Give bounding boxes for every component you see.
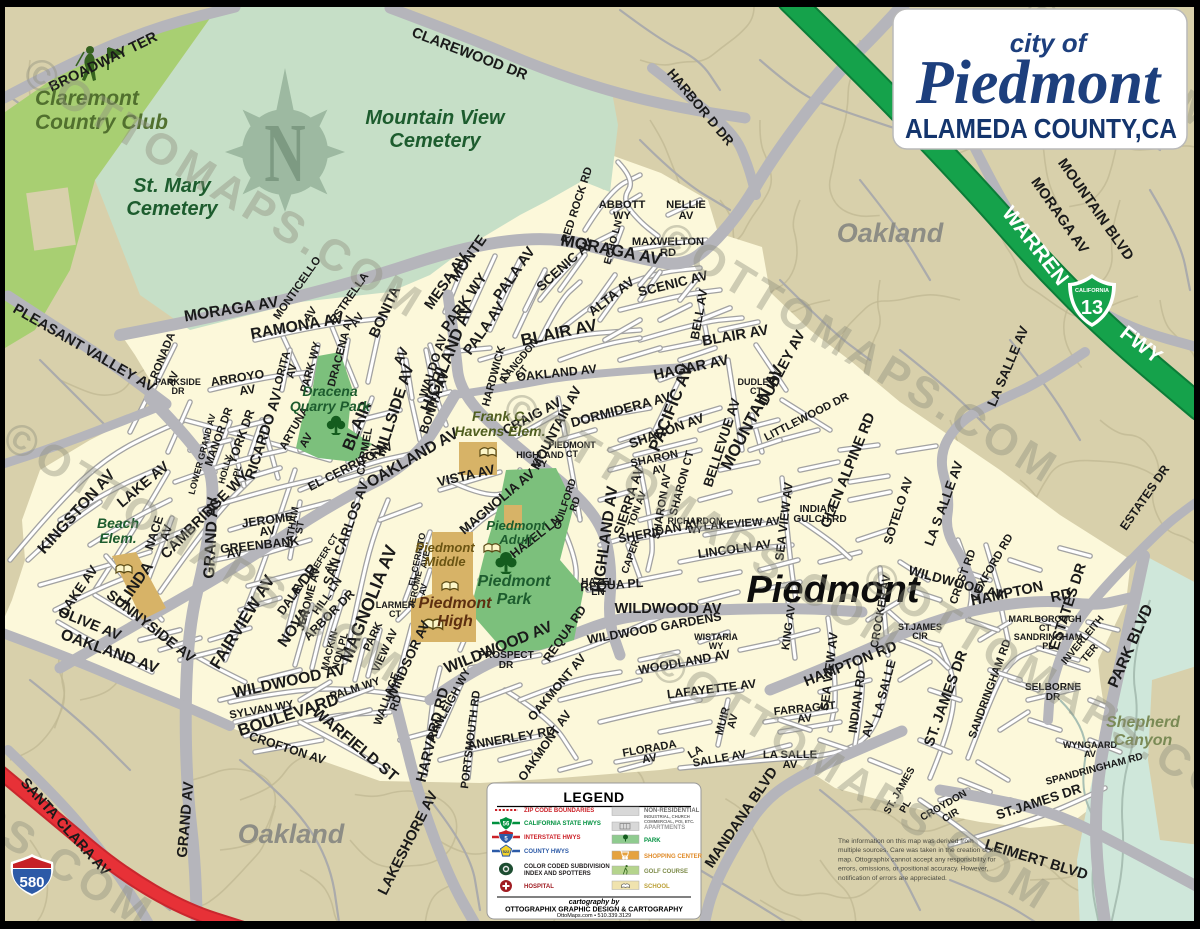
- svg-text:COLOR CODED SUBDIVISION: COLOR CODED SUBDIVISION: [524, 864, 610, 870]
- svg-text:Quarry Park: Quarry Park: [290, 398, 371, 414]
- svg-text:CT: CT: [389, 609, 401, 619]
- svg-text:multiple sources. Care was tak: multiple sources. Care was taken in the …: [838, 847, 1001, 854]
- svg-text:Piedmont: Piedmont: [486, 518, 546, 533]
- svg-text:INTERSTATE HWYS: INTERSTATE HWYS: [524, 835, 580, 841]
- svg-text:N: N: [264, 106, 305, 200]
- svg-text:DR: DR: [172, 386, 185, 396]
- svg-text:Piedmont: Piedmont: [478, 573, 552, 590]
- svg-text:ALAMEDA COUNTY,CA: ALAMEDA COUNTY,CA: [905, 113, 1177, 144]
- svg-text:The information on this map wa: The information on this map was derived …: [838, 838, 974, 845]
- svg-text:56: 56: [503, 822, 510, 828]
- svg-text:AV: AV: [1084, 749, 1096, 759]
- svg-text:errors, omissions, or position: errors, omissions, or positional accurac…: [838, 866, 989, 873]
- svg-text:SHOPPING CENTER: SHOPPING CENTER: [644, 854, 703, 860]
- svg-text:cartography by: cartography by: [569, 899, 621, 906]
- svg-text:High: High: [437, 613, 473, 630]
- svg-text:map. Ottographix cannot accept: map. Ottographix cannot accept any respo…: [838, 856, 996, 863]
- svg-text:13: 13: [1081, 297, 1103, 319]
- svg-text:Oakland: Oakland: [837, 218, 944, 248]
- svg-text:COMMERCIAL, POI, ETC.: COMMERCIAL, POI, ETC.: [644, 819, 694, 824]
- svg-text:Adult: Adult: [498, 532, 533, 547]
- svg-text:Dracena: Dracena: [302, 383, 357, 399]
- svg-text:Cemetery: Cemetery: [389, 130, 481, 152]
- svg-text:CALIFORNIA STATE HWYS: CALIFORNIA STATE HWYS: [524, 821, 601, 827]
- svg-text:Park: Park: [497, 591, 533, 608]
- svg-text:PARK: PARK: [644, 838, 661, 844]
- svg-text:Piedmont: Piedmont: [415, 540, 475, 555]
- svg-text:WY: WY: [533, 459, 548, 469]
- svg-text:CT: CT: [1039, 623, 1051, 633]
- svg-text:APARTMENTS: APARTMENTS: [644, 825, 685, 831]
- svg-text:DR: DR: [499, 660, 514, 671]
- svg-text:Middle: Middle: [424, 554, 465, 569]
- svg-text:notification of errors are app: notification of errors are appreciated.: [838, 875, 947, 882]
- svg-text:Piedmont: Piedmont: [419, 595, 493, 612]
- svg-text:Oakland: Oakland: [238, 819, 345, 849]
- svg-text:Piedmont: Piedmont: [915, 49, 1162, 117]
- svg-text:SCHOOL: SCHOOL: [644, 884, 670, 890]
- svg-text:CALIFORNIA: CALIFORNIA: [1075, 288, 1109, 294]
- svg-text:INDEX AND SPOTTERS: INDEX AND SPOTTERS: [524, 871, 591, 877]
- svg-text:OttoMaps.com • 510.339.3129: OttoMaps.com • 510.339.3129: [557, 913, 631, 919]
- svg-text:AV: AV: [238, 382, 257, 398]
- svg-text:GOLF COURSE: GOLF COURSE: [644, 869, 688, 875]
- svg-text:Mountain View: Mountain View: [365, 107, 506, 129]
- svg-text:ZIP CODE BOUNDARIES: ZIP CODE BOUNDARIES: [524, 808, 594, 814]
- svg-text:580: 580: [19, 874, 44, 891]
- svg-text:522: 522: [503, 849, 510, 854]
- svg-text:COUNTY HWYS: COUNTY HWYS: [524, 849, 569, 855]
- svg-text:HOSPITAL: HOSPITAL: [524, 884, 554, 890]
- svg-text:LEGEND: LEGEND: [563, 789, 624, 805]
